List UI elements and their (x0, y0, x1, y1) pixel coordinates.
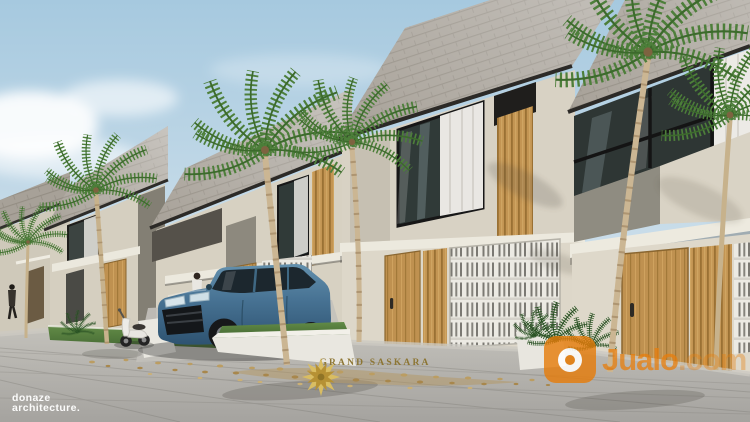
car-mirror (206, 284, 212, 290)
house-1-door-handle (630, 303, 634, 317)
house-3-curtain (294, 176, 308, 257)
jualo-wordmark: Jualo.com (602, 344, 746, 375)
brand-logo: GRAND SASKARA (300, 356, 450, 368)
house-5-door (26, 266, 44, 324)
house-4-curtain (84, 215, 98, 260)
house-2-door-handle (390, 298, 393, 309)
studio-subtitle: architecture. (12, 403, 80, 413)
house-3-slat-screen (312, 164, 334, 266)
starburst-mandala-icon (300, 356, 342, 398)
studio-watermark: donaze architecture. (12, 393, 80, 413)
jualo-name: Jualo (602, 342, 678, 377)
jualo-logo-icon (544, 336, 596, 383)
jualo-tld: .com (678, 342, 746, 377)
jualo-dot (565, 355, 575, 365)
house-2-door-slat-panel (423, 248, 447, 350)
marketplace-watermark: Jualo.com (544, 336, 746, 383)
render-canvas: donaze architecture. GRAND SASKARA Jualo… (0, 0, 750, 422)
